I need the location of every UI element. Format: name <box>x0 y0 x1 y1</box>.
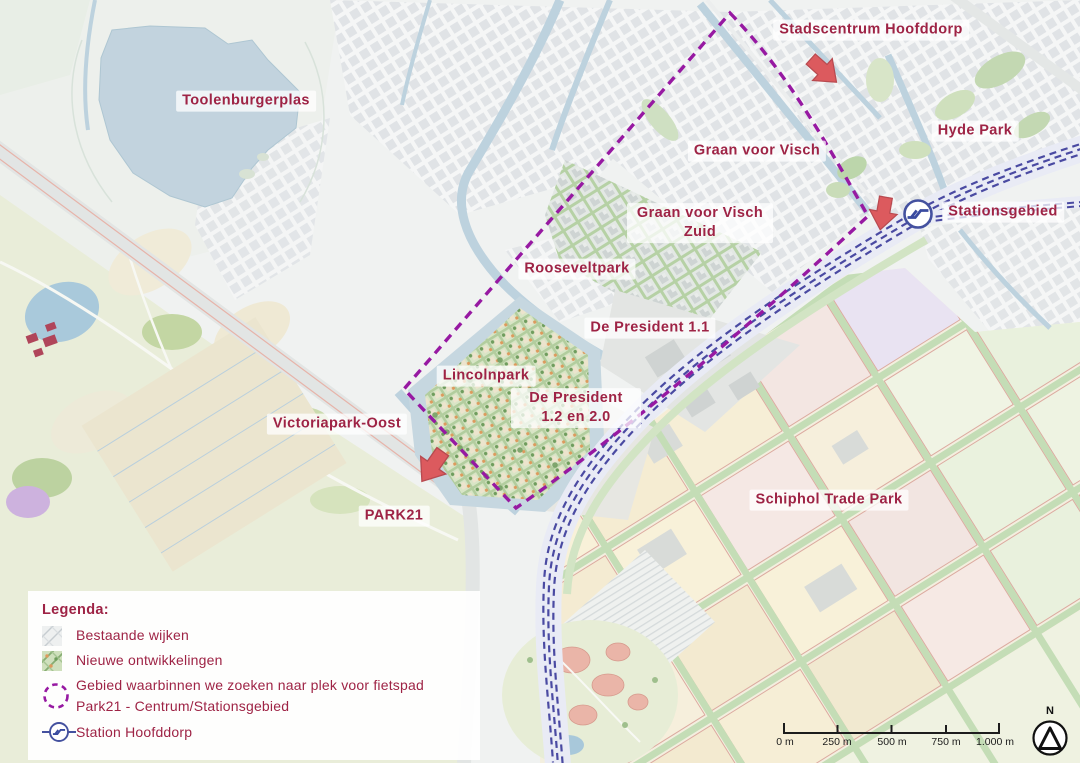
map-label-hyde-park: Hyde Park <box>932 121 1019 142</box>
legend-item-label: Station Hoofddorp <box>76 722 192 743</box>
map-village <box>502 620 678 763</box>
legend-panel: Legenda: Bestaande wijken <box>28 591 480 760</box>
map-label-victoriapark-oost: Victoriapark-Oost <box>267 414 407 435</box>
map-label-graan-voor-visch: Graan voor Visch <box>688 141 826 162</box>
search-area-dashed-icon <box>42 680 76 712</box>
legend-item-label: Gebied waarbinnen we zoeken naar plek vo… <box>76 675 424 717</box>
map-label-rooseveltpark: Rooseveltpark <box>518 259 635 280</box>
scale-tick-1000: 1.000 m <box>976 736 1014 748</box>
scale-tick-500: 500 m <box>877 736 906 748</box>
legend-title: Legenda: <box>42 602 468 618</box>
north-arrow-icon: N <box>1026 702 1074 763</box>
legend-item-station-hoofddorp: Station Hoofddorp <box>42 721 468 743</box>
legend-item-nieuwe-ontwikkelingen: Nieuwe ontwikkelingen <box>42 650 468 671</box>
scale-bar: 0 m 250 m 500 m 750 m 1.000 m <box>783 722 1000 754</box>
map-label-graan-voor-visch-zuid: Graan voor Visch Zuid <box>627 203 773 243</box>
map-label-stadscentrum-hoofddorp: Stadscentrum Hoofddorp <box>773 20 969 41</box>
scale-tick-750: 750 m <box>931 736 960 748</box>
legend-item-line1: Gebied waarbinnen we zoeken naar plek vo… <box>76 675 424 696</box>
legend-item-bestaande-wijken: Bestaande wijken <box>42 625 468 646</box>
map-label-schiphol-trade-park: Schiphol Trade Park <box>749 490 908 511</box>
map-label-toolenburgerplas: Toolenburgerplas <box>176 91 316 112</box>
legend-item-zoekgebied-fietspad: Gebied waarbinnen we zoeken naar plek vo… <box>42 675 468 717</box>
existing-areas-swatch-icon <box>42 626 76 646</box>
scale-tick-250: 250 m <box>822 736 851 748</box>
planning-map: Toolenburgerplas Stadscentrum Hoofddorp … <box>0 0 1080 763</box>
new-developments-swatch-icon <box>42 651 76 671</box>
ns-station-icon <box>905 201 932 228</box>
legend-item-label: Bestaande wijken <box>76 625 189 646</box>
scale-bar-graphic <box>783 723 1000 735</box>
legend-item-line2: Park21 - Centrum/Stationsgebied <box>76 696 424 717</box>
scale-tick-0: 0 m <box>776 736 794 748</box>
map-label-de-president-1-2-en-2-0: De President 1.2 en 2.0 <box>511 388 641 428</box>
map-label-lincolnpark: Lincolnpark <box>437 366 536 387</box>
legend-item-label: Nieuwe ontwikkelingen <box>76 650 223 671</box>
map-label-de-president-1-1: De President 1.1 <box>584 318 715 339</box>
map-label-park21: PARK21 <box>359 506 430 527</box>
north-label: N <box>1046 705 1054 717</box>
station-ns-icon <box>42 721 76 743</box>
map-label-stationsgebied: Stationsgebied <box>942 202 1064 223</box>
